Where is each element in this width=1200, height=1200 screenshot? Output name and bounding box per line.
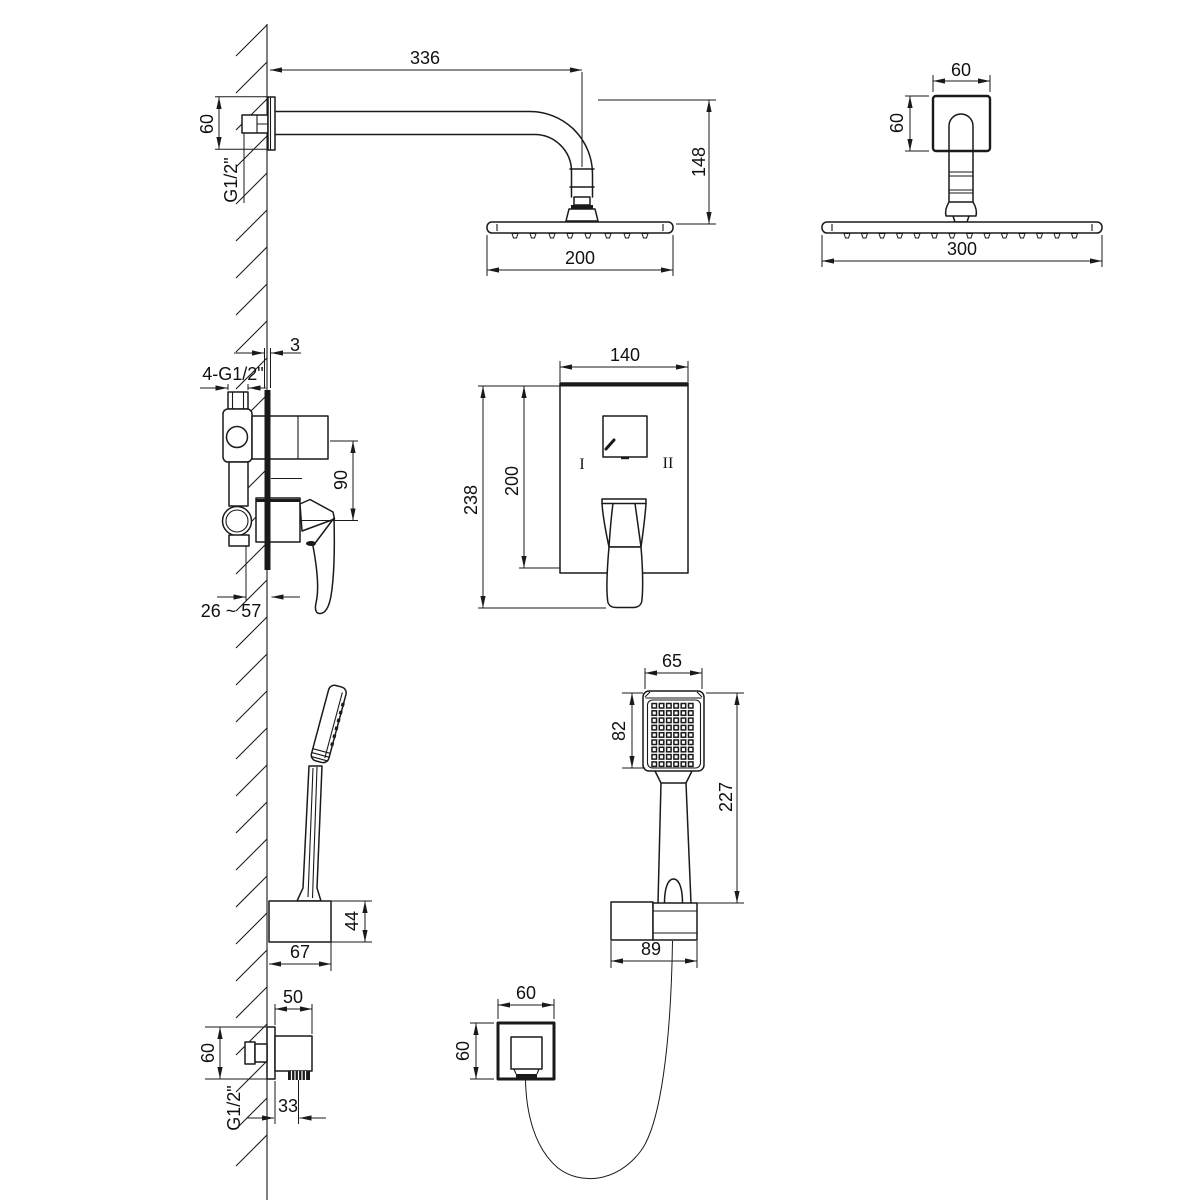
hand-shower-handle [658, 783, 691, 903]
mixer-port-bottom-outer [223, 507, 252, 536]
dim-60-height: 60 [887, 113, 907, 133]
hose-connector-band [516, 1074, 537, 1080]
handle-inlet-arch [665, 879, 683, 903]
outlet-body-side [275, 1036, 312, 1071]
dim-extensions [215, 72, 716, 276]
rain-head-front [822, 222, 1102, 233]
dim-60-height: 60 [453, 1041, 473, 1061]
dim-33: 33 [278, 1096, 298, 1116]
dim-60: 60 [198, 1043, 218, 1063]
view-mixer-side: 3 4-G1/2" 90 26 ~ 57 [200, 335, 358, 621]
view-outlet-side: 50 60 G1/2" 33 [198, 987, 326, 1131]
dim-200: 200 [502, 466, 522, 496]
dim-67: 67 [290, 942, 310, 962]
holder-clamp-front [653, 903, 697, 940]
view-shower-arm-side: 336 60 G1/2" 148 200 [197, 48, 716, 276]
arm-nut-lines [570, 169, 594, 187]
view-hand-shower-wall: 44 67 [269, 684, 372, 971]
dim-227: 227 [716, 782, 736, 812]
dim-82: 82 [609, 721, 629, 741]
dim-200: 200 [565, 248, 595, 268]
wand-handle [297, 766, 322, 901]
label-ports: 4-G1/2" [202, 364, 263, 384]
diverter-knob [603, 416, 647, 457]
view-hand-shower-front: 65 82 227 89 [609, 651, 744, 968]
hand-shower-neck [655, 771, 692, 783]
view-shower-arm-front: 60 60 300 [822, 60, 1102, 267]
mixer-trim-box [252, 416, 328, 459]
dim-44: 44 [342, 911, 362, 931]
label-position-1: I [579, 456, 584, 473]
wall-holder-block [269, 901, 331, 942]
technical-drawing: 336 60 G1/2" 148 200 60 60 300 [0, 0, 1200, 1200]
label-position-2: II [663, 455, 674, 472]
mixer-handle-base [256, 498, 300, 542]
rain-head-nozzles-front [844, 234, 1078, 239]
outlet-wall-plate [267, 1027, 275, 1079]
dim-300: 300 [947, 239, 977, 259]
view-outlet-front: 60 60 [453, 941, 673, 1179]
ball-joint-cone [566, 209, 598, 221]
hand-shower-wand-tilted [310, 684, 349, 764]
dim-238: 238 [461, 485, 481, 515]
label-thread: G1/2" [224, 1085, 244, 1130]
outlet-inner-square [511, 1037, 542, 1069]
dim-60-width: 60 [951, 60, 971, 80]
ball-joint-front [946, 202, 977, 222]
label-thread: G1/2" [221, 157, 241, 202]
mixer-thread-stub [228, 392, 248, 409]
mixer-lever-grip [313, 518, 334, 614]
mixer-port-top [227, 427, 248, 448]
dim-60-width: 60 [516, 983, 536, 1003]
dim-60: 60 [197, 114, 217, 134]
dim-50: 50 [283, 987, 303, 1007]
view-mixer-front: I II 140 238 200 [461, 345, 688, 608]
dim-89: 89 [641, 939, 661, 959]
outlet-stub-pipe [245, 1042, 255, 1064]
mixer-body-waist [229, 462, 248, 506]
arm-flange-front [933, 96, 990, 151]
dim-26-57: 26 ~ 57 [201, 601, 262, 621]
arm-flange [268, 97, 275, 150]
dim-90: 90 [331, 470, 351, 490]
dim-65: 65 [662, 651, 682, 671]
wall-plate-edge [265, 390, 271, 570]
outlet-stub-nut [255, 1044, 267, 1062]
lever-grip-front [607, 547, 643, 608]
shower-arm [275, 112, 593, 198]
rain-head-side [487, 222, 673, 233]
rain-head-nozzles-side [512, 234, 648, 239]
dim-148: 148 [689, 147, 709, 177]
holder-block-front [611, 902, 653, 940]
dim-3: 3 [290, 335, 300, 355]
dim-336: 336 [410, 48, 440, 68]
dim-140: 140 [610, 345, 640, 365]
